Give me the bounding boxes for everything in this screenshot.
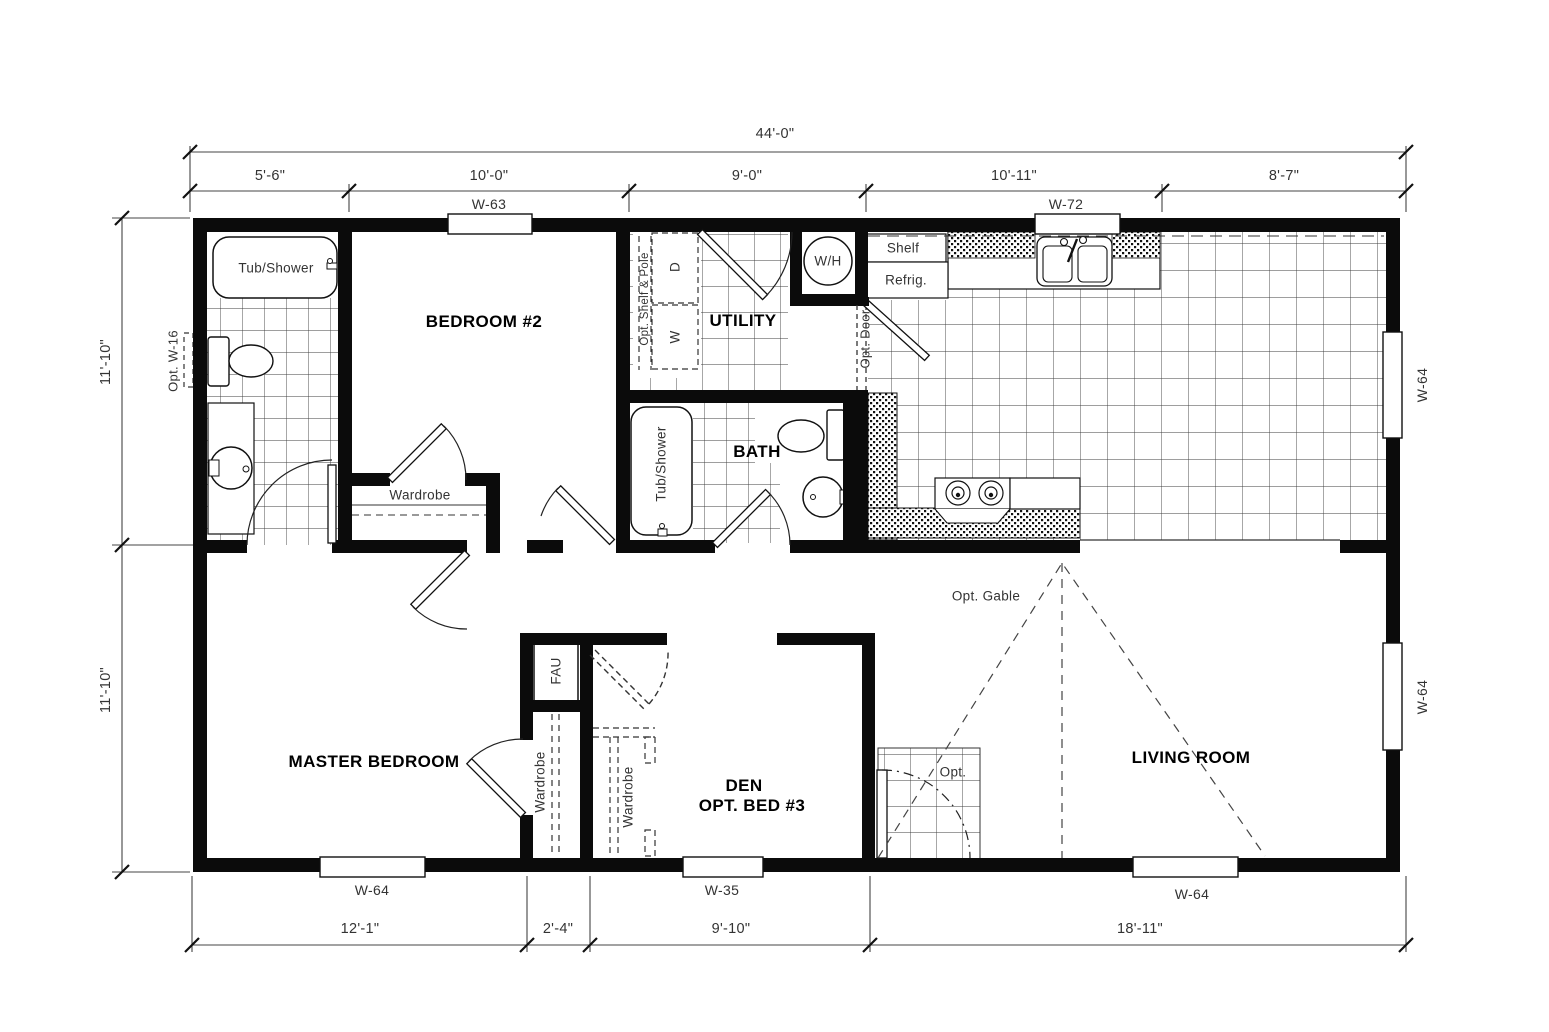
window-w35-den — [683, 857, 763, 877]
dim-top-seg-4: 10'-11" — [991, 168, 1037, 184]
label-washer: W — [668, 330, 683, 343]
room-label-den-line2: OPT. BED #3 — [699, 796, 805, 816]
kitchen-sink — [1037, 237, 1112, 287]
dim-top-seg-1: 5'-6" — [255, 168, 285, 184]
opt-w16-window-dashed — [184, 333, 193, 387]
toilet-bowl-hall — [778, 420, 824, 452]
window-label-w64-master: W-64 — [355, 882, 389, 898]
label-wardrobe-den: Wardrobe — [621, 766, 636, 827]
label-opt-gable: Opt. Gable — [952, 589, 1020, 604]
room-label-bath: BATH — [733, 442, 781, 462]
label-opt-entry: Opt. — [940, 765, 967, 780]
counter-section — [1010, 478, 1080, 509]
label-refrigerator: Refrig. — [885, 273, 927, 288]
dim-bottom-seg-2: 2'-4" — [543, 921, 573, 937]
door-leaf-wardrobe-bed2 — [388, 424, 447, 483]
label-wardrobe-master: Wardrobe — [533, 751, 548, 812]
label-shelf: Shelf — [887, 241, 919, 256]
window-w72 — [1035, 214, 1120, 234]
window-w64-master — [320, 857, 425, 877]
dim-bottom-seg-1: 12'-1" — [341, 921, 380, 937]
dim-top-seg-5: 8'-7" — [1269, 168, 1299, 184]
window-label-w64-living: W-64 — [1175, 886, 1209, 902]
toilet-tank-hall — [827, 410, 844, 460]
window-label-w35-den: W-35 — [705, 882, 739, 898]
window-w64-right-bottom — [1383, 643, 1402, 750]
window-label-w64-right-bottom: W-64 — [1414, 680, 1430, 714]
window-w64-living — [1133, 857, 1238, 877]
sink-hall — [803, 477, 843, 517]
dim-top-seg-3: 9'-0" — [732, 168, 762, 184]
label-opt-door: Opt. Door — [858, 309, 873, 368]
dim-left-lower: 11'-10" — [98, 667, 114, 713]
dim-bottom-seg-4: 18'-11" — [1117, 921, 1163, 937]
room-label-den-line1: DEN — [725, 776, 762, 796]
door-leaf-bath-main — [328, 465, 336, 543]
door-leaf-bedroom2 — [556, 486, 615, 545]
door-leaf-entry — [877, 770, 887, 858]
floor-plan: 44'-0" 5'-6" 10'-0" 9'-0" 10'-11" 8'-7" … — [0, 0, 1549, 1032]
room-label-utility: UTILITY — [709, 311, 776, 331]
door-leaf-master-wardrobe — [467, 759, 526, 818]
label-wardrobe-bed2: Wardrobe — [389, 488, 450, 503]
toilet-tank-main — [208, 337, 229, 386]
den-opt-door-dashed — [590, 650, 668, 709]
window-label-w63: W-63 — [472, 196, 506, 212]
label-dryer: D — [668, 262, 683, 272]
window-label-w72: W-72 — [1049, 196, 1083, 212]
dim-left-upper: 11'-10" — [98, 339, 114, 385]
window-label-w64-right-top: W-64 — [1414, 368, 1430, 402]
window-w64-right-top — [1383, 332, 1402, 438]
door-leaf-master — [411, 551, 470, 610]
room-label-living: LIVING ROOM — [1132, 748, 1251, 768]
label-water-heater: W/H — [814, 254, 841, 269]
label-tub-shower-main: Tub/Shower — [238, 261, 313, 276]
window-label-opt-w16: Opt. W-16 — [166, 330, 181, 392]
label-opt-shelf-pole: Opt. Shelf & Pole — [639, 252, 651, 345]
label-tub-shower-hall: Tub/Shower — [654, 426, 669, 501]
window-w63 — [448, 214, 532, 234]
toilet-bowl-main — [229, 345, 273, 377]
label-fau: FAU — [549, 657, 564, 684]
room-label-master: MASTER BEDROOM — [289, 752, 460, 772]
dim-bottom-seg-3: 9'-10" — [712, 921, 751, 937]
dim-top-total: 44'-0" — [756, 126, 795, 142]
dim-top-seg-2: 10'-0" — [470, 168, 509, 184]
master-wardrobe-dashed — [552, 714, 559, 856]
room-label-bedroom2: BEDROOM #2 — [426, 312, 542, 332]
floor-plan-drawing — [0, 0, 1549, 1032]
